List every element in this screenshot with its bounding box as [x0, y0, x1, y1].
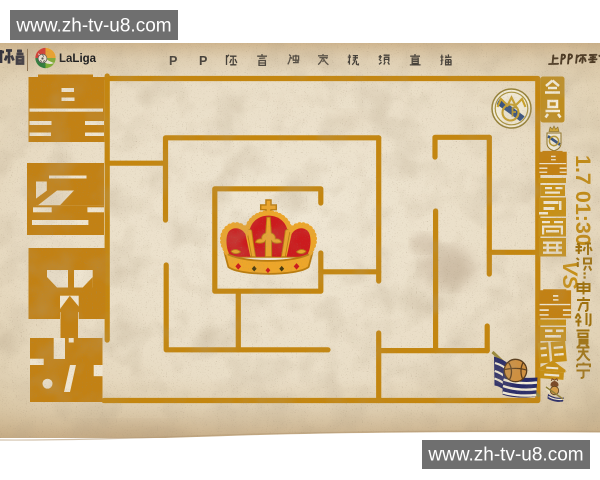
svg-text:www.zh-tv-u8.com: www.zh-tv-u8.com — [15, 16, 171, 37]
svg-text:www.zh-tv-u8.com: www.zh-tv-u8.com — [427, 445, 583, 466]
